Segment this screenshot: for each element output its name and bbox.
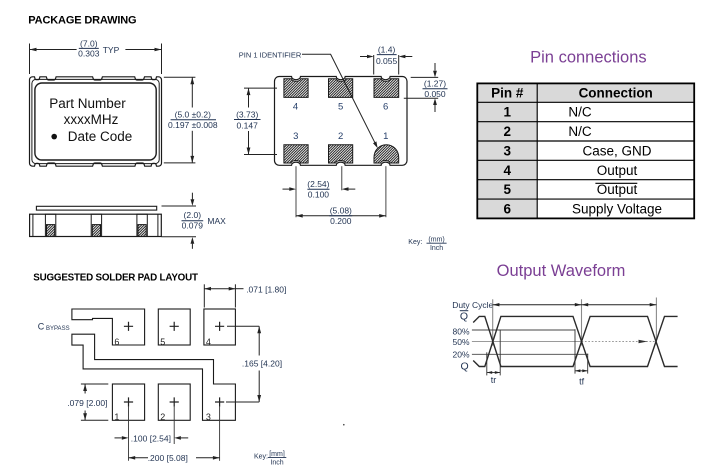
- svg-text:5: 5: [504, 182, 512, 197]
- svg-text:.071 [1.80]: .071 [1.80]: [246, 284, 286, 294]
- svg-text:Inch: Inch: [270, 459, 283, 466]
- svg-text:Case, GND: Case, GND: [582, 143, 651, 158]
- svg-text:TYP: TYP: [103, 45, 120, 55]
- svg-text:2: 2: [160, 412, 165, 422]
- svg-text:Date Code: Date Code: [68, 129, 133, 144]
- svg-text:(7.0): (7.0): [80, 38, 98, 48]
- svg-text:N/C: N/C: [568, 105, 592, 120]
- svg-text:Output: Output: [597, 182, 638, 197]
- svg-text:.165 [4.20]: .165 [4.20]: [242, 359, 282, 369]
- svg-text:tr: tr: [491, 375, 497, 385]
- svg-text:MAX: MAX: [207, 216, 226, 226]
- svg-text:80%: 80%: [452, 326, 469, 336]
- svg-text:0.147: 0.147: [237, 120, 259, 130]
- svg-text:6: 6: [504, 202, 512, 217]
- svg-text:0.197 ±0.008: 0.197 ±0.008: [168, 120, 218, 130]
- svg-text:tf: tf: [579, 376, 585, 386]
- svg-text:0.303: 0.303: [78, 48, 100, 58]
- svg-text:(mm): (mm): [428, 237, 444, 244]
- svg-text:Duty Cycle: Duty Cycle: [452, 300, 493, 310]
- svg-text:PIN 1 IDENTIFIER: PIN 1 IDENTIFIER: [239, 50, 302, 59]
- svg-text:PACKAGE DRAWING: PACKAGE DRAWING: [28, 14, 136, 26]
- svg-text:1: 1: [114, 412, 119, 422]
- svg-text:Supply Voltage: Supply Voltage: [572, 202, 662, 217]
- svg-text:(2.54): (2.54): [307, 179, 329, 189]
- svg-text:Output: Output: [597, 163, 638, 178]
- svg-text:Key:: Key:: [254, 453, 268, 460]
- svg-text:(5.08): (5.08): [330, 206, 352, 216]
- svg-text:Pin connections: Pin connections: [530, 49, 647, 67]
- svg-text:0.200: 0.200: [330, 216, 352, 226]
- svg-text:Q: Q: [461, 361, 469, 373]
- svg-text:.100 [2.54]: .100 [2.54]: [131, 433, 171, 443]
- svg-text:(5.0 ±0.2): (5.0 ±0.2): [175, 109, 211, 119]
- svg-text:Connection: Connection: [579, 85, 653, 100]
- svg-text:0.079: 0.079: [182, 220, 204, 230]
- svg-text:Inch: Inch: [430, 245, 443, 252]
- svg-text:(3.73): (3.73): [236, 109, 258, 119]
- svg-text:6: 6: [383, 101, 388, 112]
- svg-text:Q: Q: [460, 311, 468, 323]
- svg-text:4: 4: [293, 101, 298, 112]
- svg-text:1: 1: [383, 131, 388, 142]
- svg-text:0.055: 0.055: [376, 56, 398, 66]
- svg-text:4: 4: [504, 163, 512, 178]
- svg-text:Key:: Key:: [408, 239, 422, 246]
- svg-text:5: 5: [338, 101, 343, 112]
- svg-text:3: 3: [206, 412, 211, 422]
- svg-text:xxxxMHz: xxxxMHz: [64, 112, 119, 127]
- svg-text:Output Waveform: Output Waveform: [497, 262, 626, 280]
- svg-text:5: 5: [160, 337, 165, 347]
- svg-text:20%: 20%: [452, 349, 469, 359]
- svg-text:2: 2: [338, 131, 343, 142]
- svg-text:6: 6: [114, 337, 119, 347]
- svg-text:2: 2: [504, 124, 512, 139]
- svg-text:4: 4: [206, 337, 211, 347]
- svg-text:3: 3: [504, 143, 512, 158]
- svg-text:.200 [5.08]: .200 [5.08]: [148, 453, 188, 463]
- svg-text:0.100: 0.100: [308, 190, 330, 200]
- svg-text:[mm]: [mm]: [269, 451, 285, 458]
- svg-text:50%: 50%: [452, 337, 469, 347]
- svg-text:(1.4): (1.4): [378, 45, 396, 55]
- svg-text:.079 [2.00]: .079 [2.00]: [67, 398, 107, 408]
- svg-text:Pin #: Pin #: [491, 85, 524, 100]
- svg-text:0.050: 0.050: [424, 89, 446, 99]
- svg-text:Part Number: Part Number: [49, 96, 126, 111]
- svg-text:1: 1: [504, 105, 512, 120]
- svg-text:SUGGESTED SOLDER PAD LAYOUT: SUGGESTED SOLDER PAD LAYOUT: [33, 272, 198, 283]
- svg-text:3: 3: [293, 131, 298, 142]
- svg-text:(2.0): (2.0): [184, 210, 202, 220]
- svg-text:(1.27): (1.27): [424, 79, 446, 89]
- svg-text:N/C: N/C: [568, 124, 592, 139]
